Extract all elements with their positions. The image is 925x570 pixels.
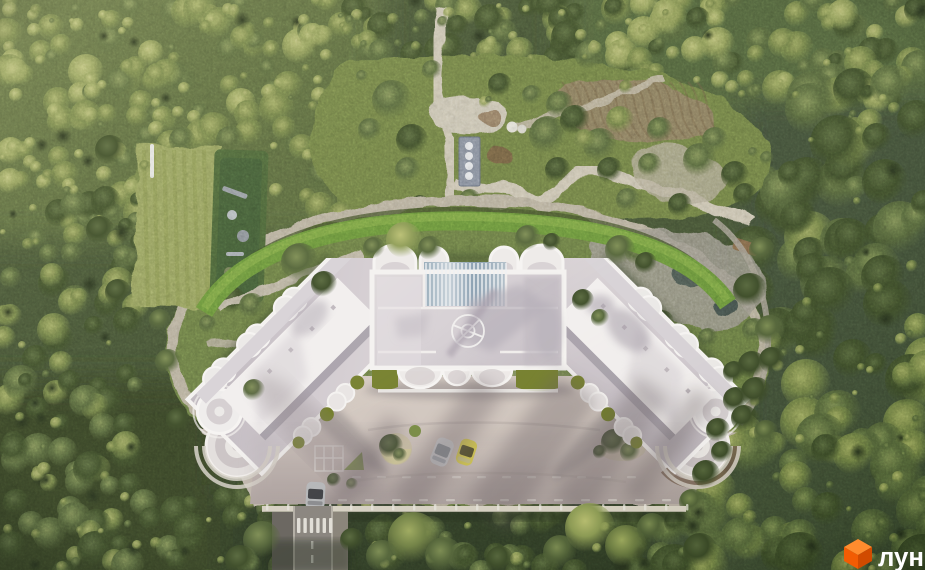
- svg-text:лун: лун: [878, 542, 924, 570]
